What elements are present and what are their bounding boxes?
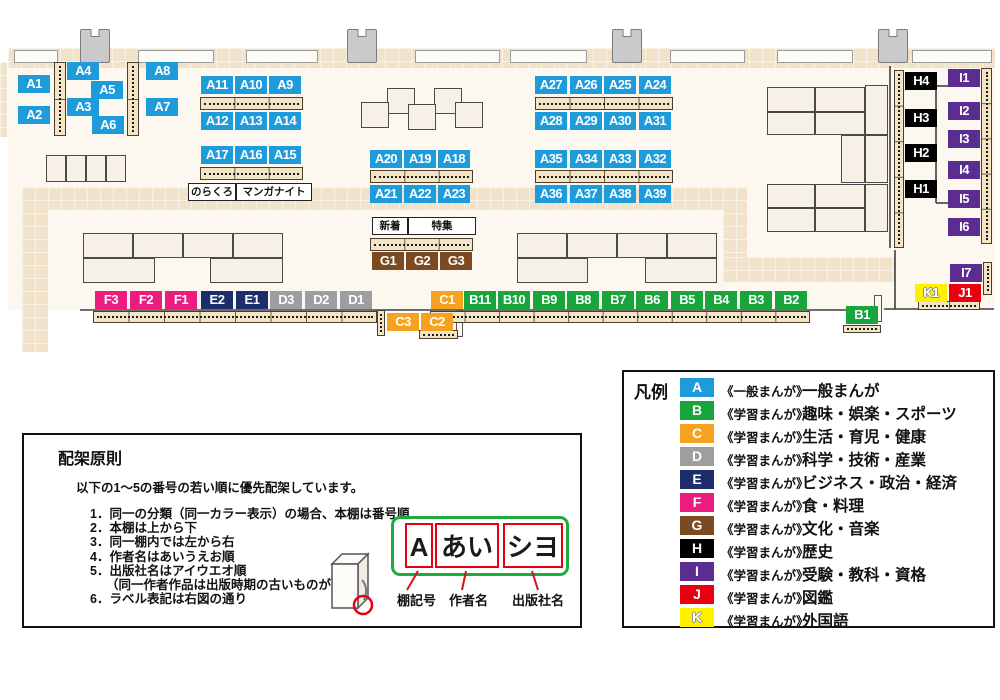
shelf-label-F2: F2 xyxy=(130,291,162,309)
shelf-label-I6: I6 xyxy=(948,218,980,236)
shelf-label-E2: E2 xyxy=(201,291,233,309)
shelf-label-A17: A17 xyxy=(201,146,233,164)
carpet-band xyxy=(723,257,895,282)
pillar xyxy=(612,29,642,63)
table-block xyxy=(106,155,126,182)
pillar xyxy=(878,29,908,63)
shelf-label-B11: B11 xyxy=(464,291,496,309)
principle-item: 6．ラベル表記は右図の通り xyxy=(90,588,247,607)
shelf-dash-line xyxy=(987,266,989,291)
legend-type: 《学習まんが》 xyxy=(721,519,809,538)
shelf-tag: のらくろ xyxy=(188,183,236,201)
shelf-label-C3: C3 xyxy=(387,313,419,331)
shelf-label-A10: A10 xyxy=(235,76,267,94)
bookshelf-strip xyxy=(93,311,377,323)
shelf-dash-line xyxy=(898,74,900,244)
shelf-label-A5: A5 xyxy=(91,81,123,99)
room-shelf-block xyxy=(815,184,865,208)
table-block xyxy=(645,258,717,283)
bookshelf-strip xyxy=(419,330,458,339)
legend-chip-D: D xyxy=(680,447,714,466)
shelf-label-A24: A24 xyxy=(639,76,671,94)
legend-chip-I: I xyxy=(680,562,714,581)
bookshelf-strip xyxy=(983,262,992,295)
shelf-label-B9: B9 xyxy=(533,291,565,309)
shelf-label-A34: A34 xyxy=(570,150,602,168)
shelf-dash-line xyxy=(374,176,469,178)
shelf-label-K1: K1 xyxy=(915,284,947,302)
legend-category: 生活・育児・健康 xyxy=(802,425,926,447)
pillar xyxy=(347,29,377,63)
bookshelf-strip xyxy=(981,68,992,244)
shelf-label-A38: A38 xyxy=(604,185,636,203)
room-shelf-block xyxy=(841,135,865,183)
shelf-label-I1: I1 xyxy=(948,69,980,87)
shelf-label-B3: B3 xyxy=(740,291,772,309)
room-shelf-block xyxy=(815,87,865,112)
shelf-label-B6: B6 xyxy=(636,291,668,309)
bookshelf-strip xyxy=(127,62,139,136)
legend-category: 科学・技術・産業 xyxy=(802,448,926,470)
shelf-label-A31: A31 xyxy=(639,112,671,130)
legend-type: 《学習まんが》 xyxy=(721,565,809,584)
shelf-dash-line xyxy=(434,316,806,318)
shelf-label-A19: A19 xyxy=(404,150,436,168)
shelf-dash-line xyxy=(986,72,988,240)
room-shelf-block xyxy=(767,87,815,112)
table-block xyxy=(133,233,183,258)
shelf-label-B8: B8 xyxy=(567,291,599,309)
shelf-dash-line xyxy=(59,66,61,132)
shelf-label-B2: B2 xyxy=(775,291,807,309)
table-block xyxy=(83,258,155,283)
bookshelf-strip xyxy=(200,97,303,110)
legend-chip-K: K xyxy=(680,608,714,627)
shelf-label-A1: A1 xyxy=(18,75,50,93)
table-block xyxy=(66,155,86,182)
bookshelf-strip xyxy=(54,62,66,136)
legend-chip-H: H xyxy=(680,539,714,558)
shelf-dash-line xyxy=(204,173,299,175)
shelf-label-H3: H3 xyxy=(905,109,937,127)
legend-category: 一般まんが xyxy=(802,379,880,401)
legend-category: 受験・教科・資格 xyxy=(802,563,926,585)
shelf-label-A3: A3 xyxy=(67,98,99,116)
shelf-label-A29: A29 xyxy=(570,112,602,130)
table-block xyxy=(617,233,667,258)
legend-chip-G: G xyxy=(680,516,714,535)
bookshelf-strip xyxy=(377,310,385,336)
shelf-label-G3: G3 xyxy=(440,252,472,270)
shelf-tag: マンガナイト xyxy=(236,183,312,201)
shelf-label-F3: F3 xyxy=(95,291,127,309)
shelf-label-A33: A33 xyxy=(604,150,636,168)
shelf-label-H1: H1 xyxy=(905,180,937,198)
shelf-dash-line xyxy=(539,103,669,105)
shelf-dash-line xyxy=(374,244,469,246)
shelf-label-I7: I7 xyxy=(950,264,982,282)
table-block xyxy=(517,233,567,258)
shelf-label-H2: H2 xyxy=(905,144,937,162)
bookshelf-strip xyxy=(370,238,473,251)
table-block xyxy=(183,233,233,258)
legend-chip-E: E xyxy=(680,470,714,489)
shelf-label-A39: A39 xyxy=(639,185,671,203)
room-shelf-block xyxy=(815,208,865,232)
shelf-label-A11: A11 xyxy=(201,76,233,94)
shelf-label-C1: C1 xyxy=(431,291,463,309)
shelf-label-I4: I4 xyxy=(948,161,980,179)
shelf-label-A27: A27 xyxy=(535,76,567,94)
shelf-label-A4: A4 xyxy=(67,62,99,80)
wall-window xyxy=(415,50,500,63)
table-block xyxy=(210,258,283,283)
shelf-label-I3: I3 xyxy=(948,130,980,148)
legend-category: ビジネス・政治・経済 xyxy=(802,471,957,493)
shelf-label-J1: J1 xyxy=(949,284,981,302)
bookshelf-strip xyxy=(430,311,810,323)
pillar-notch xyxy=(91,29,100,37)
shelf-dash-line xyxy=(847,328,877,330)
shelf-label-A32: A32 xyxy=(639,150,671,168)
legend-category: 歴史 xyxy=(802,540,833,562)
shelf-label-A14: A14 xyxy=(269,112,301,130)
bookshelf-strip xyxy=(535,97,673,110)
shelf-label-A9: A9 xyxy=(269,76,301,94)
legend-row-E: E《学習まんが》ビジネス・政治・経済 xyxy=(624,470,993,489)
bookshelf-strip xyxy=(370,170,473,183)
room-shelf-block xyxy=(767,208,815,232)
wall-window xyxy=(777,50,853,63)
legend-row-D: D《学習まんが》科学・技術・産業 xyxy=(624,447,993,466)
room-shelf-block xyxy=(865,135,888,183)
legend-category: 食・料理 xyxy=(802,494,864,516)
room-shelf-block xyxy=(865,184,888,232)
legend-row-B: B《学習まんが》趣味・娯楽・スポーツ xyxy=(624,401,993,420)
legend-chip-B: B xyxy=(680,401,714,420)
shelf-dash-line xyxy=(132,66,134,132)
shelf-tag: 新着 xyxy=(372,217,408,235)
shelf-label-A21: A21 xyxy=(370,185,402,203)
shelf-dash-line xyxy=(204,103,299,105)
carpet-band xyxy=(22,187,48,352)
legend-row-K: K《学習まんが》外国語 xyxy=(624,608,993,627)
legend-type: 《学習まんが》 xyxy=(721,450,809,469)
bookshelf-strip xyxy=(894,70,904,248)
floor-map-page: A1A2A4A3A5A6A8A7A11A10A9A12A13A14A17A16A… xyxy=(0,0,1000,700)
legend-type: 《学習まんが》 xyxy=(721,542,809,561)
room-shelf-block xyxy=(767,112,815,135)
label-shelf-code: A xyxy=(405,523,433,568)
shelf-label-F1: F1 xyxy=(165,291,197,309)
legend-row-A: A《一般まんが》一般まんが xyxy=(624,378,993,397)
wall-window xyxy=(670,50,745,63)
table-block xyxy=(361,102,389,128)
table-block xyxy=(667,233,717,258)
legend-row-F: F《学習まんが》食・料理 xyxy=(624,493,993,512)
shelf-label-A23: A23 xyxy=(438,185,470,203)
shelving-principles-panel: 配架原則 以下の1～5の番号の若い順に優先配架しています。 1．同一の分類（同一… xyxy=(22,433,582,628)
pointer-label-publisher: 出版社名 xyxy=(512,590,564,609)
shelf-dash-line xyxy=(380,314,382,332)
table-block xyxy=(83,233,133,258)
legend-type: 《学習まんが》 xyxy=(721,473,809,492)
shelf-label-A26: A26 xyxy=(570,76,602,94)
legend-panel: 凡例 A《一般まんが》一般まんがB《学習まんが》趣味・娯楽・スポーツC《学習まん… xyxy=(622,370,995,628)
shelf-label-A13: A13 xyxy=(235,112,267,130)
shelf-label-B4: B4 xyxy=(705,291,737,309)
room-shelf-block xyxy=(767,184,815,208)
legend-type: 《学習まんが》 xyxy=(721,588,809,607)
shelf-label-A8: A8 xyxy=(146,62,178,80)
shelf-label-A22: A22 xyxy=(404,185,436,203)
shelf-label-A2: A2 xyxy=(18,106,50,124)
table-block xyxy=(408,104,436,130)
shelf-label-G1: G1 xyxy=(372,252,404,270)
table-block xyxy=(455,102,483,128)
pillar-notch xyxy=(889,29,898,37)
table-block xyxy=(46,155,66,182)
legend-category: 図鑑 xyxy=(802,586,833,608)
legend-row-I: I《学習まんが》受験・教科・資格 xyxy=(624,562,993,581)
shelf-tag: 特集 xyxy=(408,217,476,235)
table-block xyxy=(517,258,588,283)
legend-type: 《学習まんが》 xyxy=(721,427,809,446)
carpet-band xyxy=(0,62,7,137)
shelf-label-B7: B7 xyxy=(602,291,634,309)
bookshelf-strip xyxy=(200,167,303,180)
shelf-label-A7: A7 xyxy=(146,98,178,116)
pillar xyxy=(80,29,110,63)
legend-chip-J: J xyxy=(680,585,714,604)
shelf-label-H4: H4 xyxy=(905,72,937,90)
shelf-label-A35: A35 xyxy=(535,150,567,168)
pillar-notch xyxy=(623,29,632,37)
wall-window xyxy=(912,50,992,63)
shelf-label-A15: A15 xyxy=(269,146,301,164)
shelf-label-G2: G2 xyxy=(406,252,438,270)
shelf-label-A28: A28 xyxy=(535,112,567,130)
legend-type: 《学習まんが》 xyxy=(721,496,809,515)
bookshelf-strip xyxy=(843,325,881,333)
shelf-dash-line xyxy=(97,316,373,318)
legend-category: 趣味・娯楽・スポーツ xyxy=(802,402,957,424)
shelf-label-A20: A20 xyxy=(370,150,402,168)
legend-type: 《一般まんが》 xyxy=(721,381,809,400)
legend-category: 文化・音楽 xyxy=(802,517,880,539)
wall-window xyxy=(510,50,587,63)
shelf-label-B10: B10 xyxy=(498,291,530,309)
shelf-label-A6: A6 xyxy=(92,116,124,134)
bookshelf-strip xyxy=(535,170,673,183)
legend-chip-A: A xyxy=(680,378,714,397)
room-shelf-block xyxy=(865,85,888,135)
shelf-label-B5: B5 xyxy=(671,291,703,309)
legend-row-H: H《学習まんが》歴史 xyxy=(624,539,993,558)
shelf-label-I2: I2 xyxy=(948,102,980,120)
wall-window xyxy=(246,50,318,63)
shelf-label-A36: A36 xyxy=(535,185,567,203)
shelf-label-I5: I5 xyxy=(948,190,980,208)
pillar-notch xyxy=(358,29,367,37)
shelf-label-A30: A30 xyxy=(604,112,636,130)
shelf-label-D3: D3 xyxy=(270,291,302,309)
shelf-label-E1: E1 xyxy=(236,291,268,309)
pointer-label-shelf-code: 棚記号 xyxy=(397,590,436,609)
shelf-label-A18: A18 xyxy=(438,150,470,168)
legend-type: 《学習まんが》 xyxy=(721,611,809,630)
shelf-dash-line xyxy=(423,334,454,336)
bookshelf-strip xyxy=(918,301,980,310)
label-author: あい xyxy=(435,523,499,568)
shelf-label-A25: A25 xyxy=(604,76,636,94)
legend-row-J: J《学習まんが》図鑑 xyxy=(624,585,993,604)
legend-chip-F: F xyxy=(680,493,714,512)
carpet-band xyxy=(723,187,747,267)
table-block xyxy=(233,233,283,258)
shelf-label-A12: A12 xyxy=(201,112,233,130)
label-diagram: A あい シヨ xyxy=(391,516,569,576)
shelf-dash-line xyxy=(539,176,669,178)
table-block xyxy=(567,233,617,258)
wall-window xyxy=(14,50,58,63)
shelf-label-C2: C2 xyxy=(421,313,453,331)
shelf-label-D2: D2 xyxy=(305,291,337,309)
shelf-label-A37: A37 xyxy=(570,185,602,203)
table-block xyxy=(86,155,106,182)
label-publisher: シヨ xyxy=(503,523,563,568)
pointer-label-author: 作者名 xyxy=(449,590,488,609)
shelf-label-B1: B1 xyxy=(846,306,878,324)
shelf-label-A16: A16 xyxy=(235,146,267,164)
shelf-label-D1: D1 xyxy=(340,291,372,309)
legend-rows: A《一般まんが》一般まんがB《学習まんが》趣味・娯楽・スポーツC《学習まんが》生… xyxy=(624,372,993,626)
legend-type: 《学習まんが》 xyxy=(721,404,809,423)
legend-row-C: C《学習まんが》生活・育児・健康 xyxy=(624,424,993,443)
shelf-dash-line xyxy=(922,305,976,307)
legend-category: 外国語 xyxy=(802,609,849,631)
legend-chip-C: C xyxy=(680,424,714,443)
room-shelf-block xyxy=(815,112,865,135)
legend-row-G: G《学習まんが》文化・音楽 xyxy=(624,516,993,535)
